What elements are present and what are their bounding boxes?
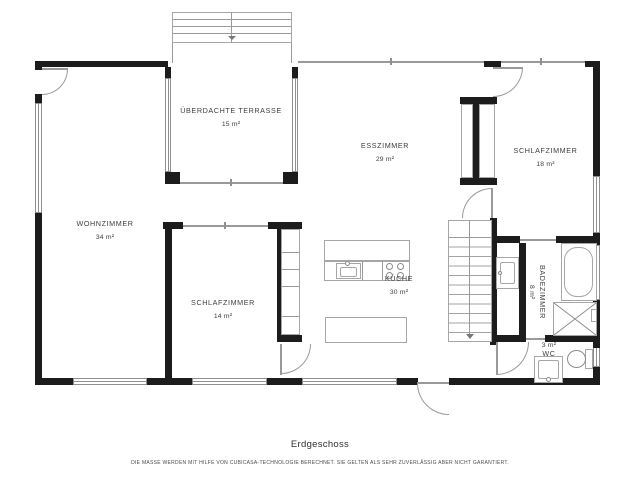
room-label-wc: WC: [531, 349, 567, 359]
wall-segment: [449, 378, 600, 385]
wall-segment: [165, 172, 180, 184]
door-leaf: [491, 188, 493, 218]
room-area-kitchen: 30 m²: [355, 288, 443, 297]
terrace-step-line: [173, 26, 291, 27]
door-swing-arc: [281, 344, 311, 374]
wall-segment: [35, 61, 168, 67]
room-label-bathroom: BADEZIMMER 8 m²: [524, 246, 548, 338]
wardrobe-shelf-line: [282, 269, 299, 270]
wall-segment: [283, 172, 298, 184]
wall-segment: [35, 61, 42, 70]
wall-opening: [183, 225, 268, 227]
opening-tick: [230, 179, 232, 186]
opening-tick: [390, 58, 392, 65]
wall-segment: [397, 378, 418, 385]
room-label-bathroom-name: BADEZIMMER: [537, 246, 548, 338]
floor-plan: ÜBERDACHTE TERRASSE 15 m² ESSZIMMER 29 m…: [0, 0, 640, 480]
window: [73, 378, 147, 385]
bathtub-basin: [564, 247, 593, 297]
shower-fitting: [591, 309, 597, 322]
door-leaf: [496, 342, 498, 375]
wardrobe-shelf-line: [282, 316, 299, 317]
kitchen-faucet-icon: [345, 261, 350, 266]
wall-segment: [490, 236, 520, 243]
door-swing-arc: [496, 342, 529, 375]
wardrobe: [281, 229, 300, 335]
closet: [461, 104, 473, 178]
room-area-bedroom-right: 18 m²: [488, 160, 603, 169]
entrance-door-leaf: [417, 382, 449, 384]
toilet-tank: [585, 349, 593, 369]
entrance-door-swing-arc: [417, 383, 449, 415]
terrace-edge-line: [172, 43, 173, 63]
terrace-edge-line: [291, 43, 292, 63]
stove-burner: [397, 263, 404, 270]
wall-segment: [277, 222, 302, 229]
room-label-bedroom-right: SCHLAFZIMMER: [488, 146, 603, 156]
opening-tick: [224, 222, 226, 229]
wall-segment: [35, 378, 73, 385]
door-leaf: [280, 344, 282, 375]
floor-title: Erdgeschoss: [260, 439, 380, 450]
kitchen-counter: [324, 240, 410, 261]
window: [593, 347, 600, 367]
wall-segment: [147, 378, 192, 385]
wardrobe-shelf-line: [282, 286, 299, 287]
terrace-step-line: [173, 33, 291, 34]
room-label-kitchen: KÜCHE: [355, 274, 443, 284]
opening-tick: [540, 58, 542, 65]
room-area-dining: 29 m²: [330, 155, 440, 164]
wc-faucet-icon: [546, 377, 551, 382]
steps-direction-arrow: [228, 36, 236, 40]
room-area-terrace: 15 m²: [161, 120, 301, 129]
wall-segment: [460, 178, 497, 185]
door-leaf: [493, 67, 523, 69]
bathroom-sink-basin: [500, 262, 515, 284]
room-area-living: 34 m²: [45, 233, 165, 242]
wall-segment: [460, 97, 497, 104]
wall-segment: [593, 61, 600, 176]
wall-segment: [165, 67, 171, 78]
window: [302, 378, 397, 385]
terrace-floor-edge: [180, 182, 283, 184]
wall-opening: [501, 61, 585, 63]
wardrobe-shelf-line: [282, 252, 299, 253]
wall-segment: [277, 335, 302, 342]
wall-opening: [526, 338, 545, 340]
staircase-direction-arrow: [466, 334, 474, 339]
door-swing-arc: [493, 67, 523, 97]
window: [35, 103, 42, 213]
window: [593, 176, 600, 233]
room-label-terrace: ÜBERDACHTE TERRASSE: [161, 106, 301, 116]
room-area-bathroom: 8 m²: [526, 246, 537, 338]
stove-burner: [386, 263, 393, 270]
door-swing-arc: [42, 69, 68, 95]
room-label-living: WOHNZIMMER: [45, 219, 165, 229]
wall-segment: [556, 236, 600, 243]
wall-segment: [267, 378, 302, 385]
room-label-bedroom-left: SCHLAFZIMMER: [163, 298, 283, 308]
window: [192, 378, 267, 385]
wall-segment: [497, 335, 526, 342]
wall-segment: [35, 94, 42, 103]
disclaimer-text: DIE MASSE WERDEN MIT HILFE VON CUBICASA-…: [60, 460, 580, 466]
staircase-center-line: [469, 220, 470, 336]
toilet-bowl: [567, 350, 586, 368]
wall-segment: [35, 213, 42, 385]
wall-opening: [520, 239, 556, 241]
staircase-treads: [449, 237, 491, 336]
wall-segment: [292, 67, 298, 78]
terrace-step-line: [173, 19, 291, 20]
bathroom-faucet-icon: [498, 271, 502, 275]
door-leaf: [42, 68, 68, 70]
door-swing-arc: [462, 188, 492, 218]
room-area-bedroom-left: 14 m²: [163, 312, 283, 321]
kitchen-island: [325, 317, 407, 343]
room-label-dining: ESSZIMMER: [330, 141, 440, 151]
